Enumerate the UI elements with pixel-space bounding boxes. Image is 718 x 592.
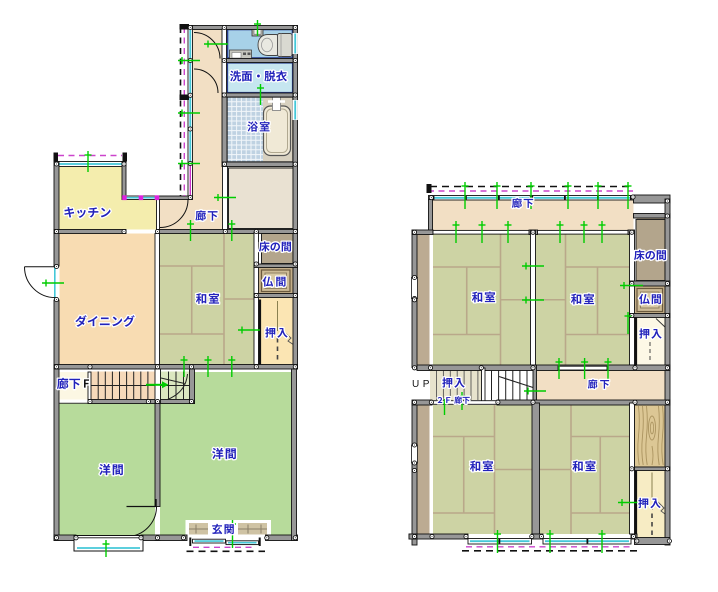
svg-text:UP: UP bbox=[412, 379, 433, 390]
